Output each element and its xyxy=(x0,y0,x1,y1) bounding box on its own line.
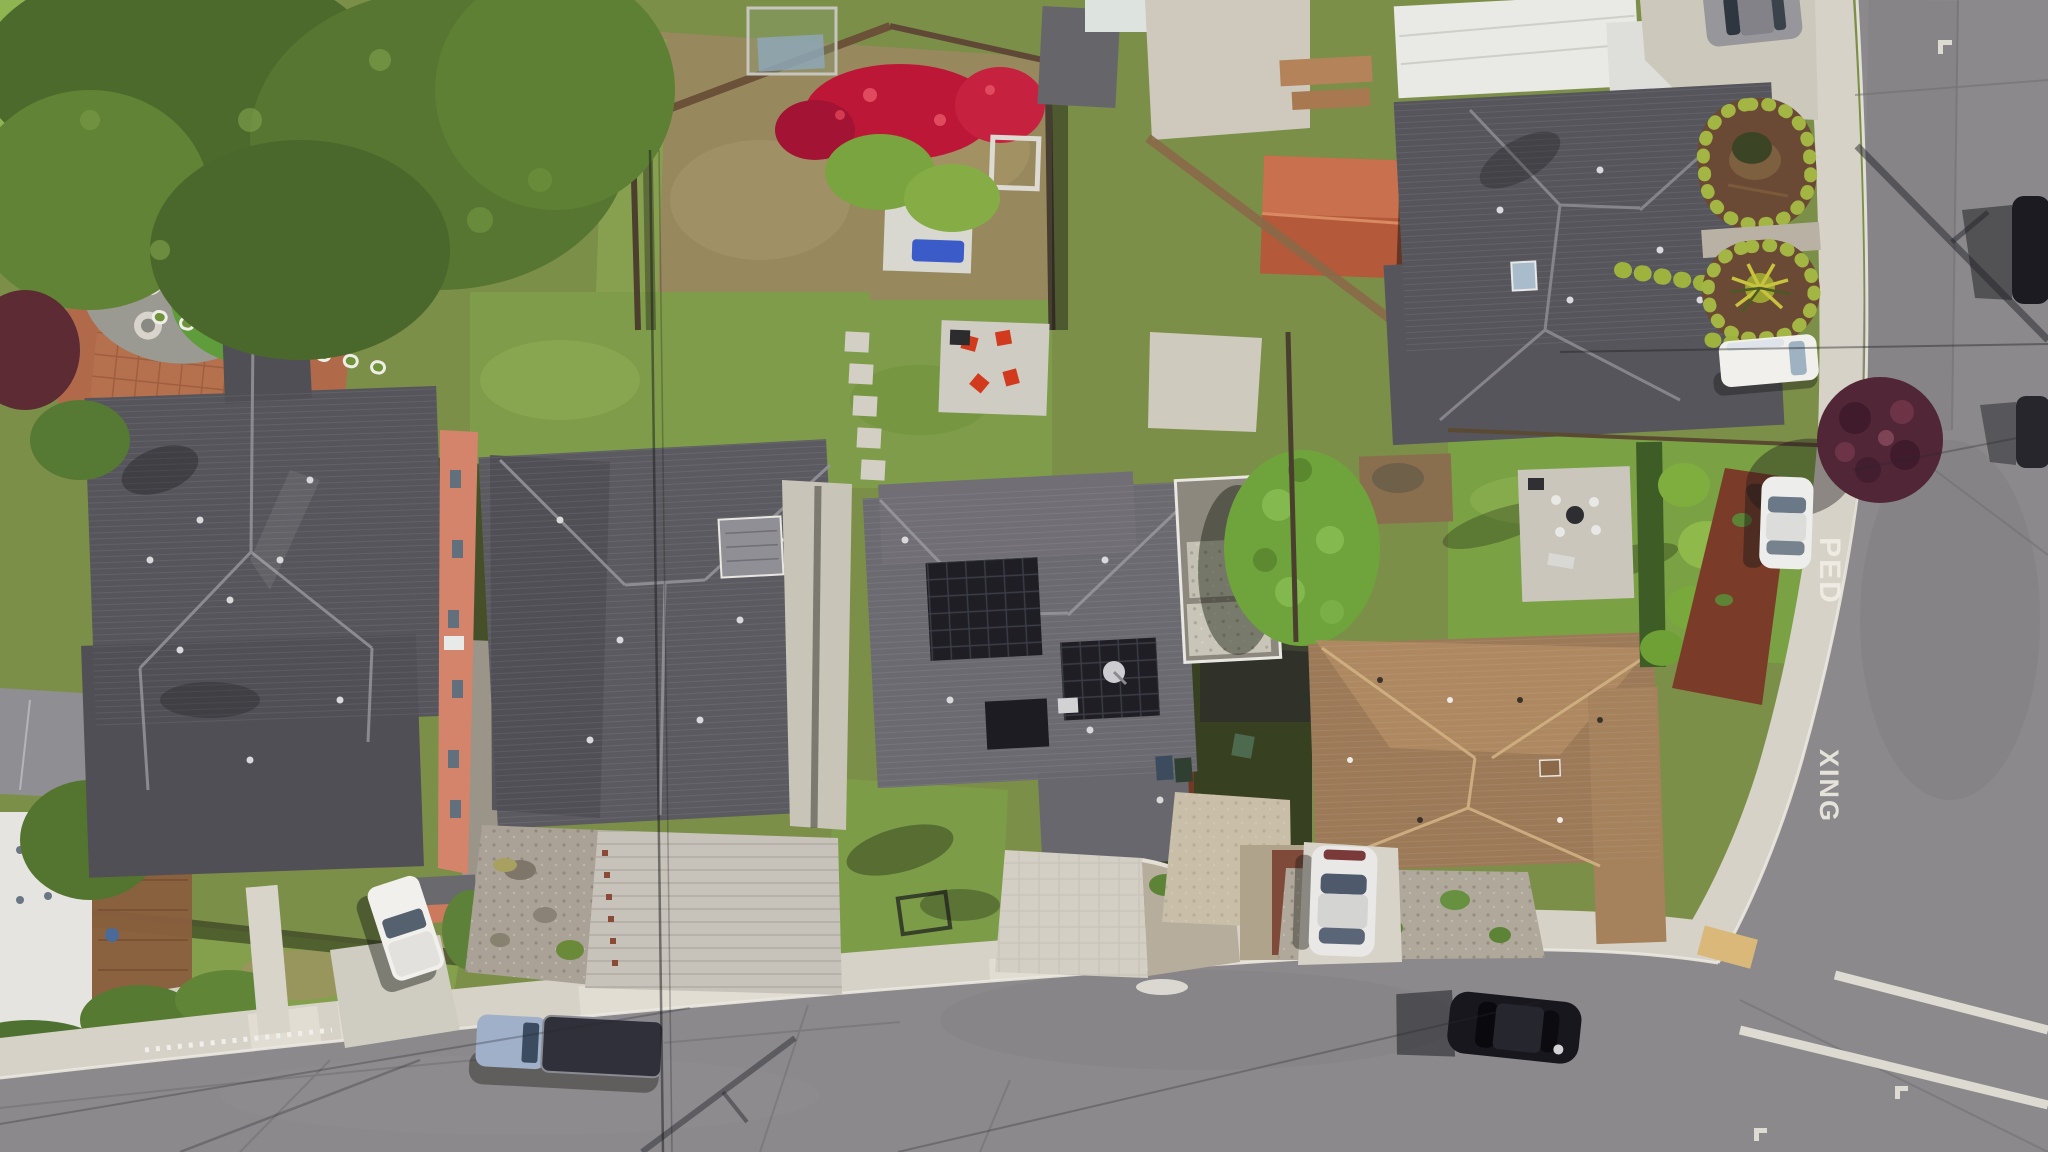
white-building xyxy=(1394,0,1640,98)
grill xyxy=(950,330,971,346)
red-chair xyxy=(995,330,1012,346)
blue-gray-pickup-street xyxy=(468,1012,664,1094)
concrete-path-back xyxy=(1148,332,1262,432)
lumber-stack xyxy=(1279,56,1372,87)
aerial-scene xyxy=(0,0,2048,1152)
aerial-photo: PED XING xyxy=(0,0,2048,1152)
trash-bin xyxy=(1174,757,1193,782)
ped-road-marking: PED xyxy=(1812,526,1846,616)
xing-road-marking: XING xyxy=(1810,736,1844,836)
white-sedan-curb xyxy=(1743,475,1814,569)
solar-array xyxy=(985,698,1049,749)
white-van-curb xyxy=(1710,333,1820,396)
small-tree xyxy=(1732,132,1772,164)
skylight xyxy=(1511,261,1536,290)
silver-car-driveway xyxy=(1292,844,1378,957)
trash-bin xyxy=(1155,755,1174,780)
dark-car-right-edge-upper xyxy=(1962,196,2048,304)
spa-water xyxy=(912,239,965,263)
green-bin xyxy=(1231,733,1255,758)
dark-car-right-edge-lower xyxy=(1980,396,2048,468)
